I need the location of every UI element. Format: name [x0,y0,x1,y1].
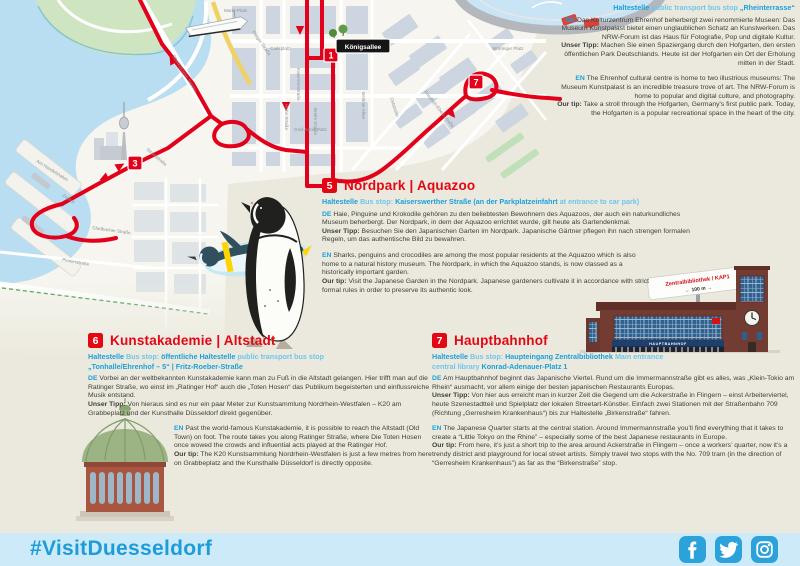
bus-stop-line: Haltestelle Bus stop: öffentliche Haltes… [88,352,436,371]
section-hauptbahnhof: 7 Hauptbahnhof Haltestelle Bus stop: Hau… [432,333,798,475]
tip-label: Our tip: [432,442,457,449]
section-title: Nordpark | Aquazoo [344,178,475,193]
en-text: Past the world-famous Kunstakademie, it … [174,425,421,449]
street-label: Kasernenstraße [296,68,301,101]
svg-text:7: 7 [473,77,478,87]
hashtag-text: #VisitDuesseldorf [30,537,212,561]
brochure-page: Markt-PlatzFlinger StraßeCarlsplatzOberk… [0,0,800,566]
en-tip-text: From here, it’s just a short trip to the… [432,442,787,466]
en-block: EN Past the world-famous Kunstakademie, … [174,425,436,468]
tip-label: Unser Tipp: [322,228,360,235]
street-label: Worringer Platz [492,46,524,51]
street-label: Carlsplatz [270,46,291,51]
en-text: Sharks, penguins and crocodiles are amon… [322,252,636,276]
section-ehrenhof-text: Haltestelle public transport bus stop „R… [552,1,795,125]
en-chip: EN [432,425,441,432]
stop-en-label: Bus stop: [470,352,503,361]
stop-name-en: at entrance to car park) [560,197,640,206]
section-title: Kunstakademie | Altstadt [110,333,276,348]
stop-de-label: Haltestelle [613,3,649,12]
tip-label: Our tip: [557,101,582,108]
stop-de-label: Haltestelle [322,197,358,206]
ehrenhof-en-block: EN The Ehrenhof cultural centre is home … [552,75,795,118]
section-kunstakademie: 6 Kunstakademie | Altstadt Haltestelle B… [88,333,436,475]
street-label: Markt-Platz [224,8,248,13]
street-label: Berliner Allee [361,92,366,120]
de-text: Haie, Pinguine und Krokodile gehören zu … [322,211,680,227]
de-chip: DE [88,375,97,382]
de-block: DE Vorbei an der weltbekannten Kunstakad… [88,375,436,418]
ehrenhof-de-block: DE Das Kulturzentrum Ehrenhof beherbergt… [552,17,795,69]
de-tip-text: Von hieraus sind es nur ein paar Meter z… [88,401,401,417]
koenigsallee-sign-label: Königsallee [345,44,382,51]
ehrenhof-bus-stop: Haltestelle public transport bus stop „R… [552,3,795,13]
en-tip-text: The K20 Kunstsammlung Nordrhein-Westfale… [174,451,432,467]
en-chip: EN [322,252,331,259]
svg-text:1: 1 [328,50,333,60]
en-chip: EN [174,425,183,432]
green-strips [485,132,540,179]
stop-de-label: Haltestelle [432,352,468,361]
stop-name: „Rheinterrasse“ [740,3,795,12]
en-block: EN Sharks, penguins and crocodiles are a… [322,252,652,295]
route-marker-7: 7 [469,75,483,89]
tip-label: Unser Tipp: [432,392,470,399]
street-label: Hohe Straße [284,104,289,130]
section-nordpark: 5 Nordpark | Aquazoo Haltestelle Bus sto… [322,178,702,302]
de-text: Am Hauptbahnhof beginnt das Japanische V… [432,375,794,391]
de-chip: DE [432,375,441,382]
stop-en-label: Bus stop: [360,197,393,206]
social-icons [679,536,778,563]
en-block: EN The Japanese Quarter starts at the ce… [432,425,798,468]
stop-address: Konrad-Adenauer-Platz 1 [482,362,568,371]
stop-address: „Tonhalle/Ehrenhof – 5“ | Fritz-Roeber-S… [88,362,243,371]
de-tip-text: Machen Sie einen Spaziergang durch den H… [564,42,795,66]
tip-label: Unser Tipp: [561,42,599,49]
stop-de-label: Haltestelle [88,352,124,361]
de-text: Vorbei an der weltbekannten Kunstakademi… [88,375,429,399]
stop-name-en: public transport bus stop [237,352,324,361]
section-title: Hauptbahnhof [454,333,548,348]
de-chip: DE [322,211,331,218]
stop-name: öffentliche Haltestelle [161,352,235,361]
bus-stop-line: Haltestelle Bus stop: Haupteingang Zentr… [432,352,667,371]
twitter-icon[interactable] [715,536,742,563]
facebook-icon[interactable] [679,536,706,563]
en-text: The Ehrenhof cultural centre is home to … [561,75,795,99]
footer-bar: #VisitDuesseldorf [0,533,800,566]
en-tip-text: Visit the Japanese Garden in the Nordpar… [322,278,649,294]
stop-en-label: Bus stop: [126,352,159,361]
en-text: The Japanese Quarter starts at the centr… [432,425,783,441]
stop-name: Haupteingang Zentralbibliothek [505,352,613,361]
section-number-badge: 7 [432,333,447,348]
street-label: Graf-Adolf-Platz [294,127,327,132]
en-chip: EN [575,75,584,82]
stop-name: Kaiserswerther Straße (an der Parkplatze… [395,197,558,206]
tip-label: Our tip: [174,451,199,458]
instagram-icon[interactable] [751,536,778,563]
de-block: DE Haie, Pinguine und Krokodile gehören … [322,211,702,246]
tip-label: Unser Tipp: [88,401,126,408]
svg-text:3: 3 [132,158,137,168]
de-tip-text: Von hier aus erreicht man in kurzer Zeit… [432,392,789,416]
stop-en-label: public transport bus stop [651,3,738,12]
bus-stop-line: Haltestelle Bus stop: Kaiserswerther Str… [322,197,702,207]
de-text: Das Kulturzentrum Ehrenhof beherbergt zw… [561,17,795,41]
section-number-badge: 5 [322,178,337,193]
route-marker-3: 3 [128,156,142,170]
de-block: DE Am Hauptbahnhof beginnt das Japanisch… [432,375,798,418]
de-chip: DE [566,17,575,24]
en-tip-text: Take a stroll through the Hofgarten, Ger… [584,101,795,117]
de-tip-text: Besuchen Sie den Japanischen Garten im N… [322,228,690,244]
section-number-badge: 6 [88,333,103,348]
tip-label: Our tip: [322,278,347,285]
